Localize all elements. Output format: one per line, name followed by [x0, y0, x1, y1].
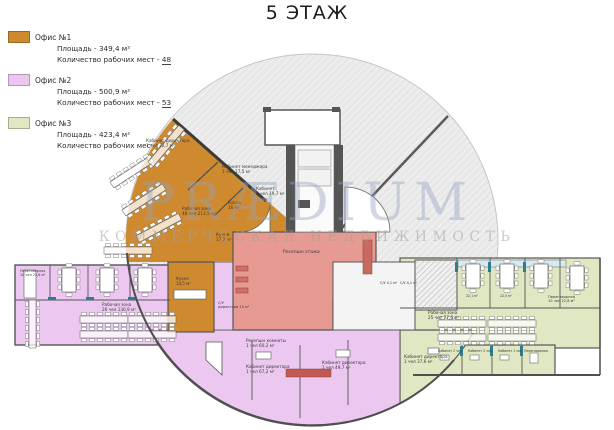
stairwell	[415, 260, 457, 310]
svg-text:10 чел 23,6 м²: 10 чел 23,6 м²	[20, 273, 46, 277]
svg-text:16 м²: 16 м²	[228, 205, 240, 210]
label-kab-g3: Кабинет 1 чел	[498, 349, 522, 353]
svg-text:1 чел 17,5 м²: 1 чел 17,5 м²	[222, 169, 251, 174]
core-pier-right	[334, 145, 343, 232]
label-reception-floor: Ресепшн этажа	[283, 249, 320, 255]
core-top-mark-left	[263, 107, 271, 112]
floor-plan-drawing: Кабинет директора 1 чел 32,7 м² Кабинет …	[0, 0, 614, 430]
floor-plan-page: 5 ЭТАЖ Офис №1 Площадь - 349,4 м² Количе…	[0, 0, 614, 430]
svg-text:17,2 м²: 17,2 м²	[216, 237, 232, 242]
label-kab-g1: Кабинет 2 чел	[438, 349, 462, 353]
service-zone	[333, 262, 415, 330]
svg-text:1 чел 49,7 м²: 1 чел 49,7 м²	[322, 365, 351, 370]
svg-text:10 чел 22,8 м²: 10 чел 22,8 м²	[548, 299, 575, 303]
svg-text:2 чел 19,7 м²: 2 чел 19,7 м²	[256, 191, 285, 196]
label-su-2: С/У 4,1 м²	[400, 281, 418, 285]
svg-text:1 чел 60,2 м²: 1 чел 60,2 м²	[246, 343, 275, 348]
core-top-bar	[265, 110, 340, 145]
svg-text:1 чел 37,6 м²: 1 чел 37,6 м²	[404, 359, 433, 364]
label-su-1: С/У 4,1 м²	[380, 281, 398, 285]
label-pereg-g2: Переговорная	[524, 349, 548, 353]
label-area-g1: 22,1 м²	[466, 294, 479, 298]
svg-text:14,5 м²: 14,5 м²	[176, 281, 191, 286]
label-area-g2: 22,5 м²	[500, 294, 513, 298]
core-panel	[298, 200, 310, 208]
core-top-mark-right	[332, 107, 340, 112]
elevator-cell-1	[298, 150, 331, 167]
svg-text:25 чел 77,6 м²: 25 чел 77,6 м²	[428, 315, 460, 320]
svg-text:1 чел 32,7 м²: 1 чел 32,7 м²	[146, 143, 175, 148]
svg-text:48 чел 213,5 м²: 48 чел 213,5 м²	[182, 211, 216, 216]
label-kab-g2: Кабинет 2 чел	[468, 349, 492, 353]
svg-text:1 чел 67,2 м²: 1 чел 67,2 м²	[246, 369, 275, 374]
core-pier-left	[286, 145, 295, 232]
svg-text:26 чел 130,9 м²: 26 чел 130,9 м²	[102, 307, 136, 312]
office2-sliver	[214, 262, 233, 330]
svg-text:директора 10 м²: директора 10 м²	[218, 305, 250, 309]
elevator-cell-2	[298, 169, 331, 186]
